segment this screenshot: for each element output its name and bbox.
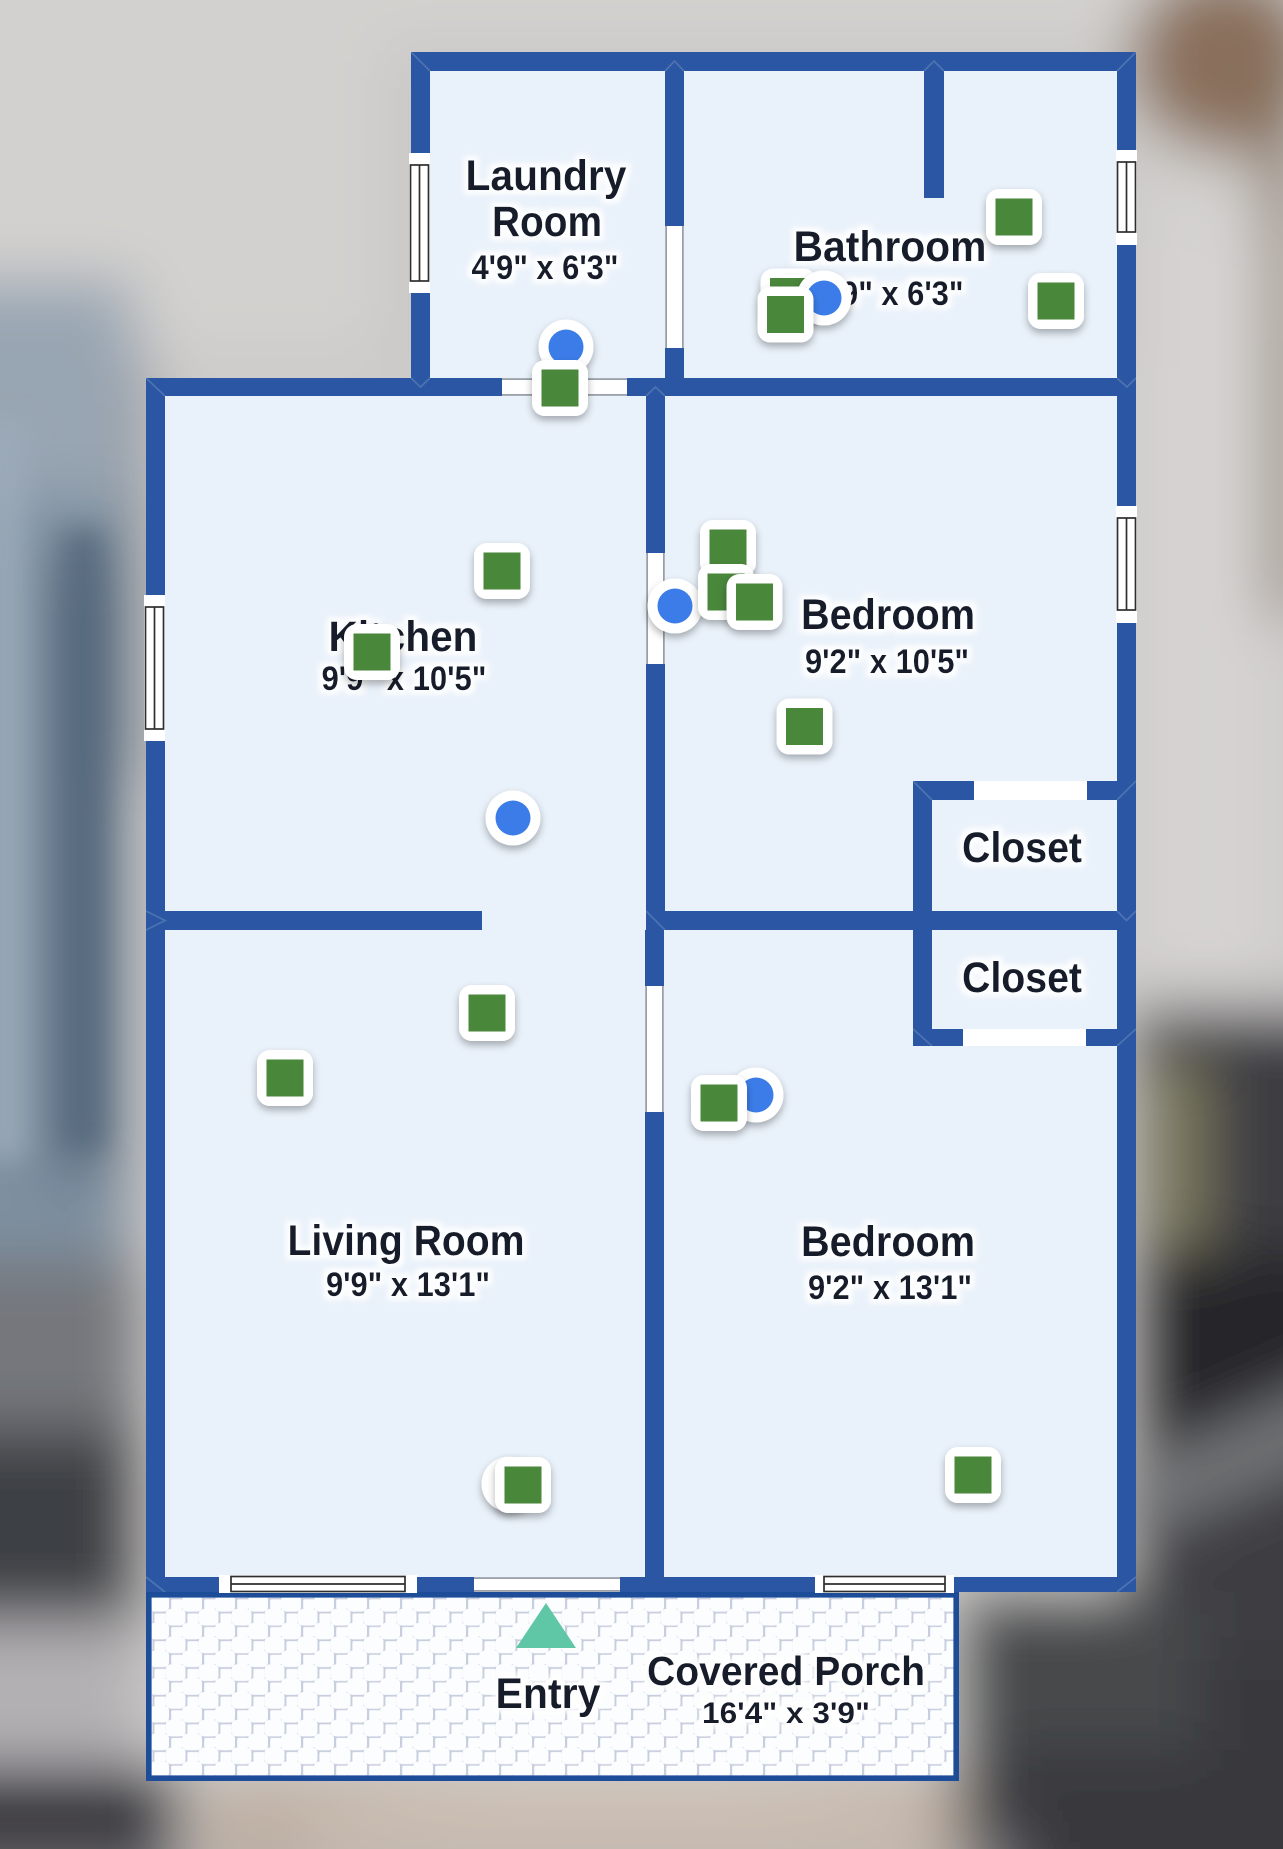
svg-text:9'2" x 13'1": 9'2" x 13'1" [808, 1269, 972, 1307]
svg-text:16'4" x 3'9": 16'4" x 3'9" [702, 1697, 870, 1730]
svg-text:4'9" x 6'3": 4'9" x 6'3" [472, 249, 619, 287]
svg-text:9'2" x 10'5": 9'2" x 10'5" [805, 643, 969, 681]
svg-text:Bedroom: Bedroom [801, 1218, 975, 1266]
svg-text:Bathroom: Bathroom [794, 223, 987, 271]
svg-text:Covered Porch: Covered Porch [647, 1648, 925, 1694]
svg-text:Room: Room [492, 198, 602, 246]
svg-text:Bedroom: Bedroom [801, 591, 975, 639]
svg-text:Laundry: Laundry [466, 152, 627, 200]
svg-text:Living Room: Living Room [288, 1217, 525, 1265]
svg-text:Closet: Closet [962, 954, 1082, 1002]
svg-text:9'9" x 13'1": 9'9" x 13'1" [326, 1266, 490, 1304]
svg-text:Entry: Entry [496, 1670, 601, 1718]
svg-text:Closet: Closet [962, 824, 1082, 872]
